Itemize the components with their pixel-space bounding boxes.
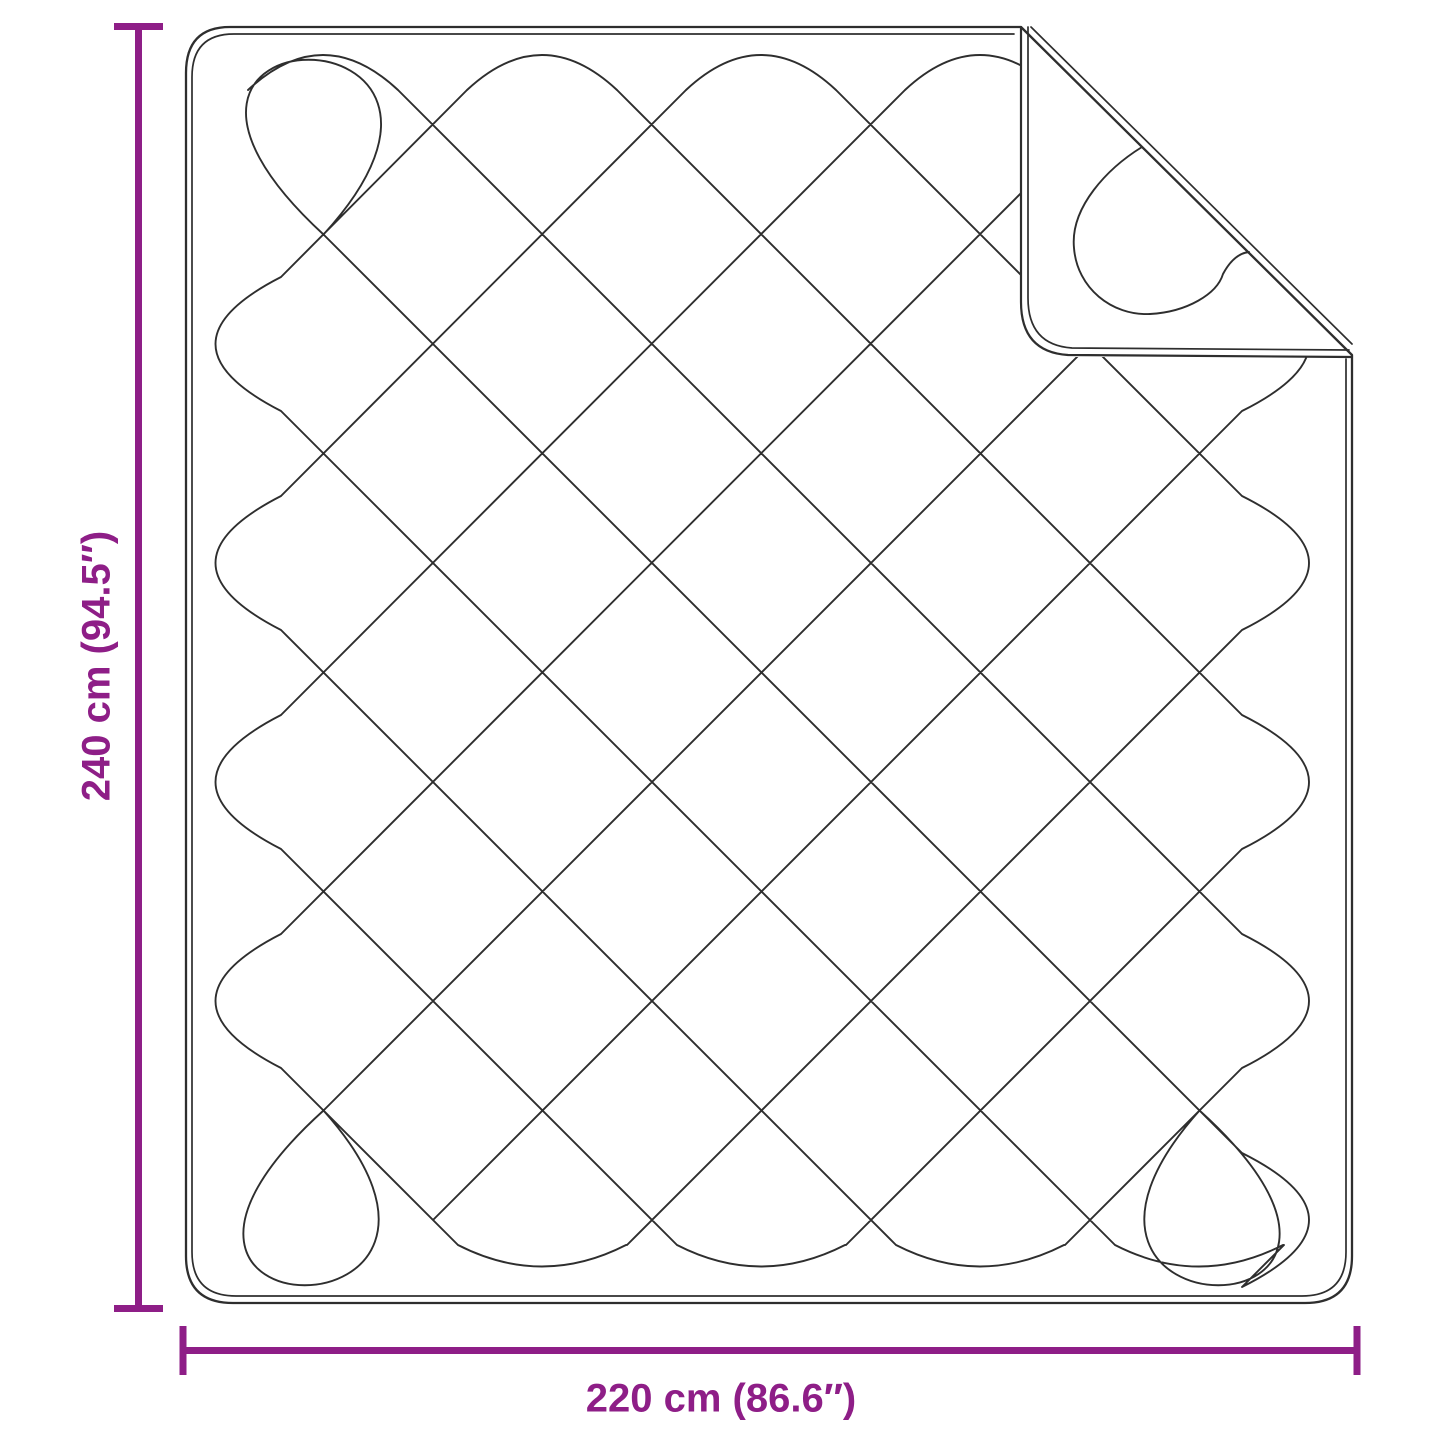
width-dimension-cap-left — [180, 1326, 187, 1375]
height-dimension-cap-top — [114, 23, 163, 30]
width-dimension-line — [183, 1347, 1357, 1354]
blanket-diagram — [0, 0, 1445, 1445]
height-dimension-cap-bottom — [114, 1305, 163, 1312]
height-dimension-line — [135, 26, 142, 1309]
height-dimension-label: 240 cm (94.5″) — [75, 531, 120, 801]
product-dimension-diagram: 240 cm (94.5″) 220 cm (86.6″) — [0, 0, 1445, 1445]
width-dimension-cap-right — [1354, 1326, 1361, 1375]
width-dimension-label: 220 cm (86.6″) — [586, 1377, 856, 1422]
